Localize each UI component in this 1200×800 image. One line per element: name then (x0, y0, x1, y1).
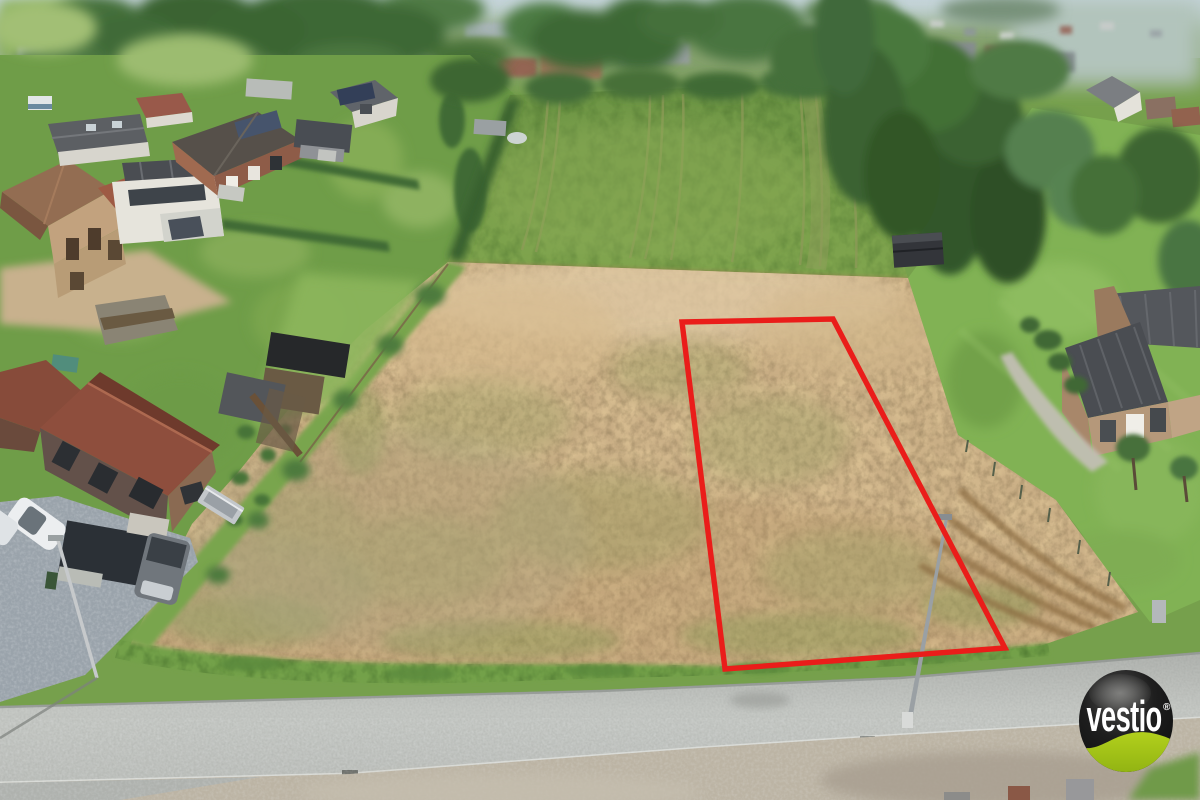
svg-text:vestio: vestio (1087, 691, 1162, 740)
svg-text:®: ® (1163, 702, 1171, 713)
